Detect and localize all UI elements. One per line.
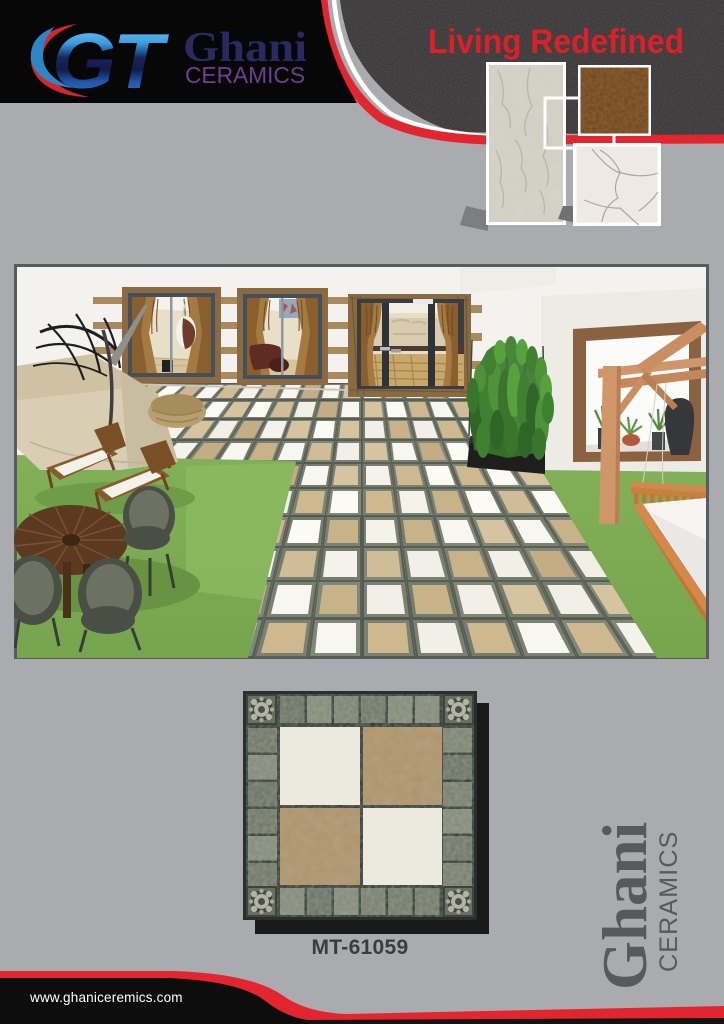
svg-text:www.ghaniceremics.com: www.ghaniceremics.com [29,990,183,1005]
svg-text:CERAMICS: CERAMICS [655,830,683,972]
svg-text:GT: GT [52,17,170,105]
svg-text:CERAMICS: CERAMICS [185,62,305,88]
